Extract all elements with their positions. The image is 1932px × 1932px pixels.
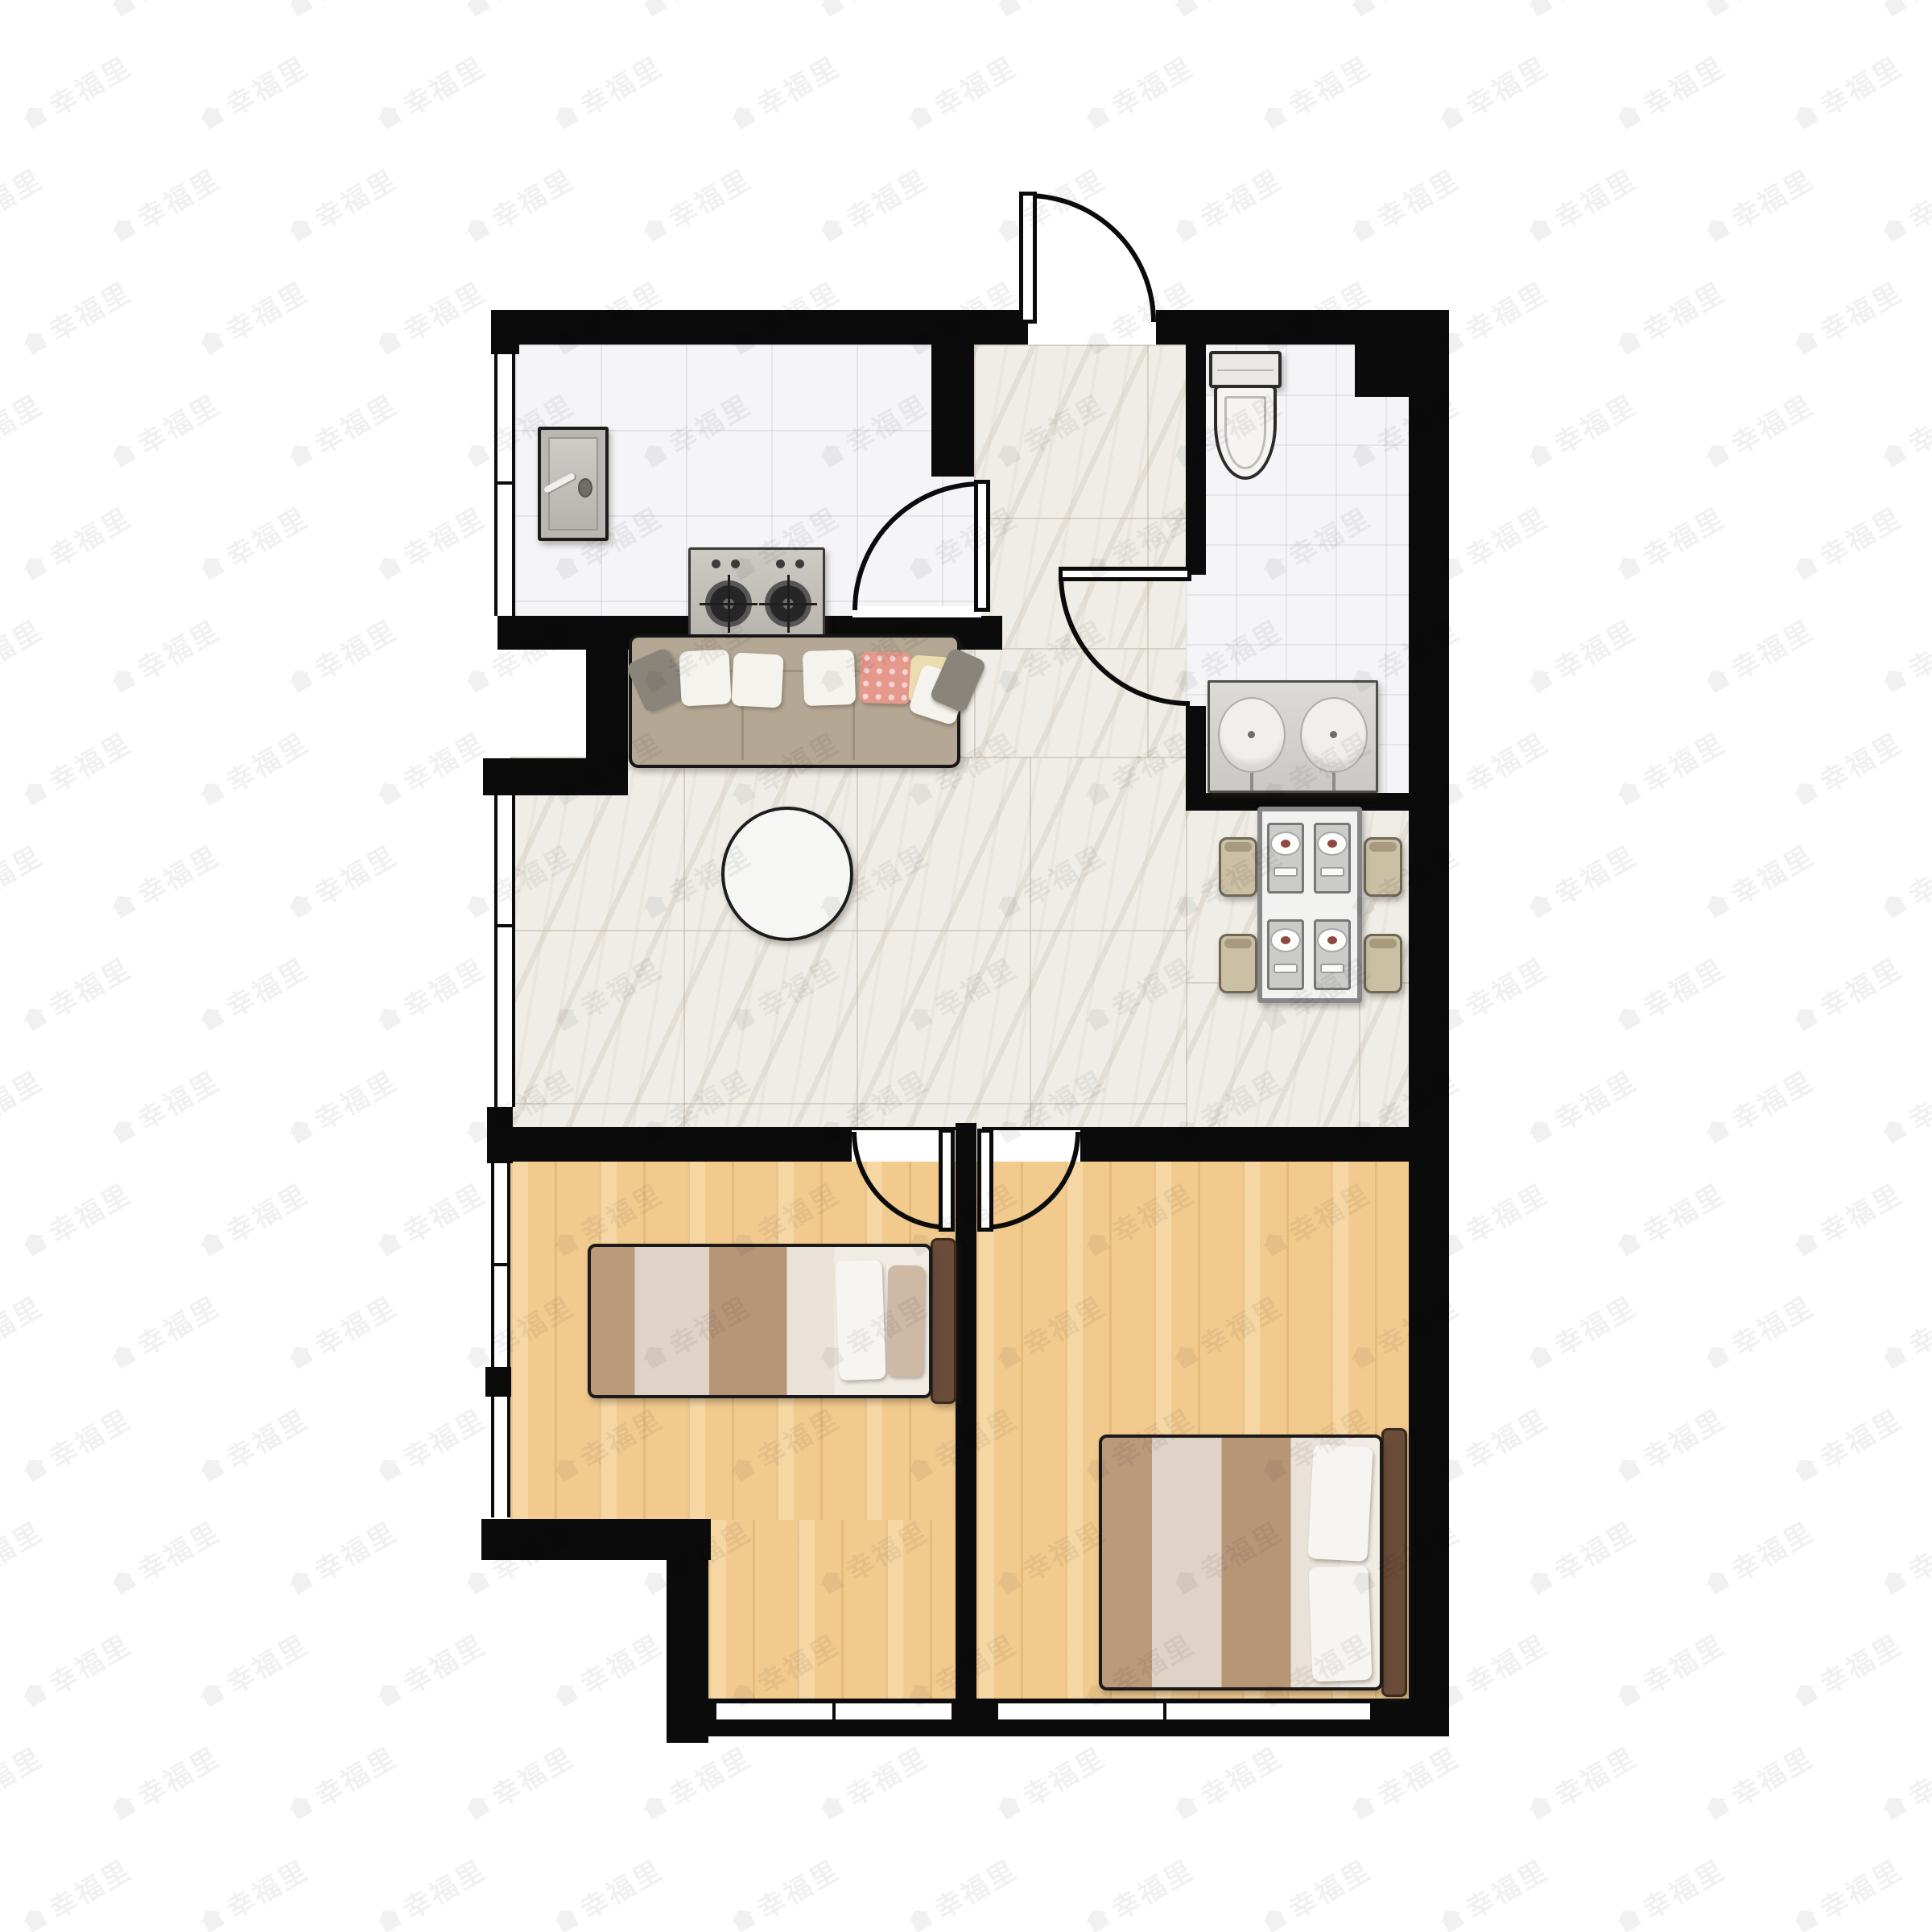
floor-plan: 幸福里幸福里幸福里幸福里幸福里幸福里幸福里幸福里幸福里幸福里幸福里幸福里幸福里幸… [0,0,1932,1932]
watermark-tile: 幸福里 [280,1059,404,1154]
house-icon [373,1002,404,1033]
watermark-text: 幸福里 [1458,1848,1555,1927]
watermark-text: 幸福里 [1458,721,1555,800]
house-icon [638,1566,670,1596]
watermark-tile: 幸福里 [811,0,935,27]
house-icon [1878,439,1909,469]
watermark-tile: 幸福里 [900,1848,1024,1932]
watermark-tile: 幸福里 [1431,1397,1555,1492]
watermark-text: 幸福里 [1635,947,1732,1026]
watermark-tile: 幸福里 [1697,383,1821,477]
watermark-text: 幸福里 [0,1736,49,1814]
house-icon [373,326,404,357]
place-setting [1267,823,1304,894]
house-icon [284,664,316,695]
watermark-text: 幸福里 [1369,1736,1467,1814]
house-icon [284,1566,316,1596]
watermark-tile: 幸福里 [1785,1172,1909,1266]
house-icon [815,1791,847,1822]
house-icon [1524,664,1555,695]
watermark-tile: 幸福里 [546,1848,670,1932]
watermark-text: 幸福里 [927,1848,1024,1927]
bed1-pillow-white [835,1260,885,1381]
house-icon [1524,890,1555,920]
house-icon [638,1791,670,1822]
watermark-tile: 幸福里 [1785,947,1909,1041]
wall-bed1-notch-v [667,1560,708,1743]
house-icon [1524,213,1555,244]
house-icon [19,1453,50,1484]
sofa-pillow-white [679,649,731,706]
watermark-tile: 幸福里 [1874,609,1932,703]
watermark-text: 幸福里 [1192,158,1290,237]
watermark-text: 幸福里 [307,0,404,11]
house-icon [107,890,138,920]
stove-knob [712,559,720,568]
watermark-tile: 幸福里 [546,45,670,139]
watermark-tile: 幸福里 [369,1623,493,1717]
watermark-text: 幸福里 [1901,609,1932,687]
house-icon [1258,1904,1290,1932]
sofa-pillow-coral [859,651,912,704]
vanity-faucet [1332,773,1335,791]
watermark-text: 幸福里 [307,834,404,913]
window-mullion [497,924,512,927]
watermark-tile: 幸福里 [634,1736,758,1830]
house-icon [107,0,138,19]
house-icon [196,1678,227,1709]
watermark-tile: 幸福里 [1697,834,1821,928]
watermark-text: 幸福里 [1104,1848,1201,1927]
watermark-text: 幸福里 [130,834,227,913]
watermark-tile: 幸福里 [369,45,493,139]
bedroom2-door-threshold [982,1127,1080,1130]
watermark-text: 幸福里 [1812,496,1909,575]
watermark-text: 幸福里 [0,1285,49,1364]
watermark-text: 幸福里 [1724,1285,1821,1364]
watermark-tile: 幸福里 [1608,270,1732,365]
house-icon [550,1678,581,1709]
watermark-tile: 幸福里 [1431,45,1555,139]
watermark-text: 幸福里 [1015,1736,1113,1814]
house-icon [1701,1340,1732,1371]
watermark-text: 幸福里 [1812,1172,1909,1251]
house-icon [815,0,847,19]
wall-bed1-notch-h [481,1519,711,1560]
watermark-text: 幸福里 [1724,1736,1821,1814]
watermark-text: 幸福里 [41,1397,138,1476]
watermark-tile: 幸福里 [1785,270,1909,365]
house-icon [1170,1791,1201,1822]
watermark-text: 幸福里 [218,1848,316,1927]
house-icon [1701,1115,1732,1146]
watermark-tile: 幸福里 [0,0,49,27]
watermark-text: 幸福里 [1635,270,1732,349]
house-icon [373,1228,404,1258]
watermark-text: 幸福里 [1724,609,1821,687]
dining-table [1257,807,1362,1003]
house-icon [1081,101,1113,131]
house-icon [1347,213,1378,244]
watermark-text: 幸福里 [1901,834,1932,913]
watermark-tile: 幸福里 [369,1172,493,1266]
watermark-text: 幸福里 [41,1172,138,1251]
house-icon [1790,1678,1821,1709]
watermark-text: 幸福里 [307,383,404,462]
house-icon [727,101,758,131]
watermark-text: 幸福里 [130,1059,227,1138]
watermark-text: 幸福里 [218,1397,316,1476]
plate [1317,832,1348,856]
stove-burner [765,580,811,627]
watermark-tile: 幸福里 [457,158,581,252]
watermark-tile: 幸福里 [192,721,316,815]
watermark-tile: 幸福里 [14,270,138,365]
watermark-tile: 幸福里 [14,1172,138,1266]
house-icon [196,1002,227,1033]
watermark-tile: 幸福里 [1254,1848,1378,1932]
watermark-tile: 幸福里 [192,1848,316,1932]
watermark-text: 幸福里 [41,1848,138,1927]
house-icon [107,1115,138,1146]
watermark-tile: 幸福里 [0,1285,49,1379]
watermark-text: 幸福里 [307,609,404,687]
house-icon [727,1904,758,1932]
watermark-tile: 幸福里 [1697,609,1821,703]
watermark-text: 幸福里 [1546,1285,1644,1364]
house-icon [550,1904,581,1932]
house-icon [19,1228,50,1258]
bed1-pillow-beige [886,1265,925,1377]
watermark-text: 幸福里 [838,1736,935,1814]
house-icon [107,439,138,469]
watermark-tile: 幸福里 [1785,1623,1909,1717]
watermark-text: 幸福里 [838,158,935,237]
sink-drain [578,478,592,497]
watermark-tile: 幸福里 [1785,496,1909,590]
watermark-tile: 幸福里 [369,1397,493,1492]
watermark-text: 幸福里 [130,1736,227,1814]
watermark-text: 幸福里 [1458,947,1555,1026]
watermark-tile: 幸福里 [0,158,49,252]
toilet-tank [1209,351,1282,388]
watermark-tile: 幸福里 [1785,721,1909,815]
watermark-text: 幸福里 [130,1510,227,1589]
watermark-tile: 幸福里 [1874,834,1932,928]
house-icon [284,213,316,244]
house-icon [461,439,493,469]
dining-chair [1364,837,1402,897]
house-icon [1612,101,1644,131]
gas-stove [688,547,825,644]
plate [1317,928,1348,952]
entry-door-swing-arc [1027,193,1156,322]
house-icon [1524,0,1555,19]
house-icon [1878,1791,1909,1822]
watermark-tile: 幸福里 [1785,1848,1909,1932]
watermark-text: 幸福里 [661,0,758,11]
watermark-text: 幸福里 [1546,609,1644,687]
watermark-tile: 幸福里 [1343,158,1467,252]
watermark-text: 幸福里 [1812,1623,1909,1702]
house-icon [461,890,493,920]
living-floor-main [510,757,1186,1129]
watermark-tile: 幸福里 [1608,1848,1732,1932]
house-icon [1790,101,1821,131]
bedroom2-door-leaf [977,1129,993,1232]
watermark-text: 幸福里 [1546,0,1644,11]
watermark-text: 幸福里 [307,1285,404,1364]
house-icon [1170,213,1201,244]
house-icon [461,664,493,695]
window-bedroom1-left-lower [491,1397,510,1517]
watermark-tile: 幸福里 [1431,270,1555,365]
watermark-text: 幸福里 [1901,1510,1932,1589]
house-icon [19,101,50,131]
watermark-tile: 幸福里 [1520,1510,1644,1604]
house-icon [1701,0,1732,19]
watermark-tile: 幸福里 [1166,0,1290,27]
watermark-text: 幸福里 [661,1736,758,1814]
watermark-text: 幸福里 [130,609,227,687]
house-icon [1790,1228,1821,1258]
bathroom-door-leaf [1059,567,1191,581]
kitchen-sink [538,427,609,541]
watermark-tile: 幸福里 [280,609,404,703]
watermark-text: 幸福里 [1458,1172,1555,1251]
watermark-tile: 幸福里 [811,158,935,252]
dining-chair [1219,934,1257,993]
watermark-tile: 幸福里 [14,1623,138,1717]
watermark-text: 幸福里 [1901,1285,1932,1364]
watermark-tile: 幸福里 [1520,1059,1644,1154]
house-icon [1612,1228,1644,1258]
wall-bed1-left-block [485,1367,511,1397]
house-icon [284,439,316,469]
napkin [1274,964,1298,973]
house-icon [196,101,227,131]
house-icon [107,213,138,244]
watermark-tile: 幸福里 [1785,45,1909,139]
watermark-tile: 幸福里 [280,158,404,252]
watermark-text: 幸福里 [1724,0,1821,11]
watermark-text: 幸福里 [1812,1397,1909,1476]
watermark-text: 幸福里 [395,1397,493,1476]
watermark-tile: 幸福里 [1697,0,1821,27]
sofa-pillow-white [803,650,856,706]
watermark-text: 幸福里 [661,158,758,237]
vanity-faucet [1250,773,1253,791]
house-icon [196,551,227,582]
watermark-text: 幸福里 [1546,1510,1644,1589]
house-icon [373,777,404,807]
watermark-tile: 幸福里 [0,383,49,477]
house-icon [993,1791,1024,1822]
watermark-text: 幸福里 [1546,383,1644,462]
house-icon [1790,1904,1821,1932]
watermark-tile: 幸福里 [369,270,493,365]
house-icon [550,101,581,131]
watermark-tile: 幸福里 [280,0,404,27]
watermark-tile: 幸福里 [989,0,1113,27]
watermark-tile: 幸福里 [14,1397,138,1492]
watermark-tile: 幸福里 [103,383,227,477]
house-icon [815,213,847,244]
watermark-text: 幸福里 [1458,496,1555,575]
watermark-text: 幸福里 [395,270,493,349]
watermark-tile: 幸福里 [1166,1736,1290,1830]
watermark-tile: 幸福里 [280,1510,404,1604]
house-icon [904,101,935,131]
plate [1270,832,1301,856]
house-icon [638,213,670,244]
watermark-text: 幸福里 [0,609,49,687]
watermark-text: 幸福里 [395,1172,493,1251]
bathroom-vanity [1207,680,1378,793]
watermark-text: 幸福里 [307,1736,404,1814]
window-bedroom1-left-upper [491,1163,510,1367]
watermark-tile: 幸福里 [192,1397,316,1492]
watermark-tile: 幸福里 [1608,1397,1732,1492]
watermark-tile: 幸福里 [103,1736,227,1830]
watermark-text: 幸福里 [1901,1059,1932,1138]
wall-living-bedroom2 [1080,1127,1409,1162]
house-icon [461,1791,493,1822]
watermark-tile: 幸福里 [1431,947,1555,1041]
watermark-text: 幸福里 [1901,383,1932,462]
house-icon [1081,1904,1113,1932]
watermark-text: 幸福里 [1635,1172,1732,1251]
watermark-tile: 幸福里 [280,1285,404,1379]
house-icon [1347,1791,1378,1822]
watermark-tile: 幸福里 [1874,1285,1932,1379]
watermark-text: 幸福里 [1458,45,1555,124]
watermark-text: 幸福里 [1635,721,1732,800]
watermark-tile: 幸福里 [0,609,49,703]
watermark-text: 幸福里 [395,45,493,124]
watermark-text: 幸福里 [1635,1623,1732,1702]
watermark-tile: 幸福里 [280,383,404,477]
watermark-text: 幸福里 [130,0,227,11]
watermark-text: 幸福里 [1546,834,1644,913]
house-icon [1701,890,1732,920]
house-icon [19,1904,50,1932]
wall-right [1409,310,1449,1735]
wall-bedroom-divider [956,1123,976,1735]
watermark-tile: 幸福里 [0,1510,49,1604]
watermark-tile: 幸福里 [192,1172,316,1266]
house-icon [1612,777,1644,807]
watermark-tile: 幸福里 [280,1736,404,1830]
watermark-text: 幸福里 [572,45,670,124]
watermark-text: 幸福里 [218,947,316,1026]
house-icon [1347,0,1378,19]
watermark-tile: 幸福里 [1697,1736,1821,1830]
house-icon [107,1791,138,1822]
watermark-text: 幸福里 [1635,1848,1732,1927]
watermark-text: 幸福里 [218,496,316,575]
watermark-tile: 幸福里 [1431,721,1555,815]
window-mullion [1163,1703,1166,1719]
watermark-tile: 幸福里 [1785,1397,1909,1492]
house-icon [1790,1002,1821,1033]
house-icon [107,1340,138,1371]
watermark-text: 幸福里 [41,496,138,575]
house-icon [1701,664,1732,695]
dining-chair [1219,837,1257,897]
watermark-tile: 幸福里 [1874,158,1932,252]
watermark-tile: 幸福里 [1874,1059,1932,1154]
house-icon [1790,551,1821,582]
watermark-tile: 幸福里 [1608,947,1732,1041]
watermark-tile: 幸福里 [634,158,758,252]
watermark-text: 幸福里 [1281,1848,1378,1927]
vanity-basin [1218,697,1286,773]
watermark-tile: 幸福里 [723,45,847,139]
watermark-tile: 幸福里 [192,45,316,139]
watermark-text: 幸福里 [1724,1059,1821,1138]
house-icon [1524,1340,1555,1371]
watermark-text: 幸福里 [1192,0,1290,11]
watermark-tile: 幸福里 [811,1736,935,1830]
watermark-tile: 幸福里 [14,45,138,139]
watermark-text: 幸福里 [1724,383,1821,462]
watermark-text: 幸福里 [0,158,49,237]
bedroom1-floor-ext [708,1520,956,1700]
watermark-text: 幸福里 [218,1623,316,1702]
house-icon [284,1115,316,1146]
house-icon [196,1453,227,1484]
wall-kitchen-hall [931,345,974,477]
house-icon [19,551,50,582]
watermark-tile: 幸福里 [1608,1172,1732,1266]
napkin [1274,867,1298,877]
watermark-text: 幸福里 [1192,1736,1290,1814]
watermark-tile: 幸福里 [723,1848,847,1932]
house-icon [284,1340,316,1371]
watermark-text: 幸福里 [1635,45,1732,124]
watermark-tile: 幸福里 [280,834,404,928]
entry-door-leaf [1019,192,1037,324]
watermark-text: 幸福里 [927,45,1024,124]
watermark-text: 幸福里 [838,0,935,11]
house-icon [638,0,670,19]
watermark-tile: 幸福里 [989,1736,1113,1830]
house-icon [461,213,493,244]
watermark-text: 幸福里 [1458,270,1555,349]
house-icon [1612,326,1644,357]
watermark-tile: 幸福里 [369,1848,493,1932]
house-icon [373,1453,404,1484]
watermark-tile: 幸福里 [14,721,138,815]
watermark-tile: 幸福里 [1343,0,1467,27]
watermark-text: 幸福里 [1812,947,1909,1026]
watermark-text: 幸福里 [1812,45,1909,124]
sofa-pillow-white [731,652,783,708]
wall-jog-horizontal [483,758,628,795]
watermark-text: 幸福里 [395,1848,493,1927]
watermark-tile: 幸福里 [1343,1736,1467,1830]
watermark-text: 幸福里 [395,496,493,575]
house-icon [1701,439,1732,469]
wall-top-left [497,310,1028,345]
house-icon [993,0,1024,19]
watermark-tile: 幸福里 [1608,721,1732,815]
watermark-tile: 幸福里 [103,609,227,703]
watermark-tile: 幸福里 [1520,834,1644,928]
house-icon [1435,101,1467,131]
house-icon [1170,0,1201,19]
